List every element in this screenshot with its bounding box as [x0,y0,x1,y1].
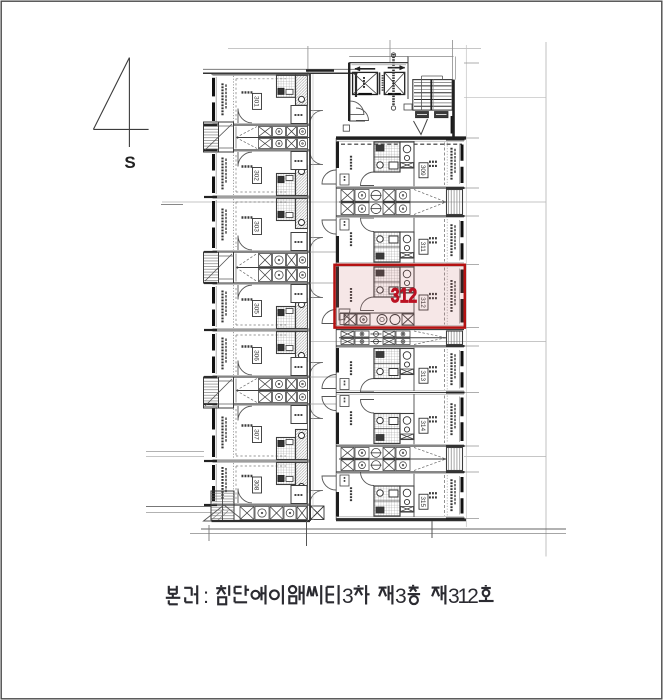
svg-text:302: 302 [253,170,260,181]
svg-text:313: 313 [419,370,426,381]
svg-text:2: 2 [467,585,479,608]
svg-text:3: 3 [342,585,354,608]
svg-text:315: 315 [419,496,426,507]
svg-text:307: 307 [253,429,260,440]
svg-text:312: 312 [391,283,418,307]
svg-text:309: 309 [419,165,426,176]
svg-text:314: 314 [419,420,426,431]
svg-text::: : [203,585,209,608]
svg-text:308: 308 [253,480,260,491]
svg-text:3: 3 [395,585,407,608]
svg-text:303: 303 [253,221,260,232]
svg-text:306: 306 [253,350,260,361]
svg-text:S: S [124,153,135,172]
svg-text:311: 311 [419,242,426,253]
svg-text:301: 301 [253,96,260,107]
svg-text:305: 305 [253,303,260,314]
